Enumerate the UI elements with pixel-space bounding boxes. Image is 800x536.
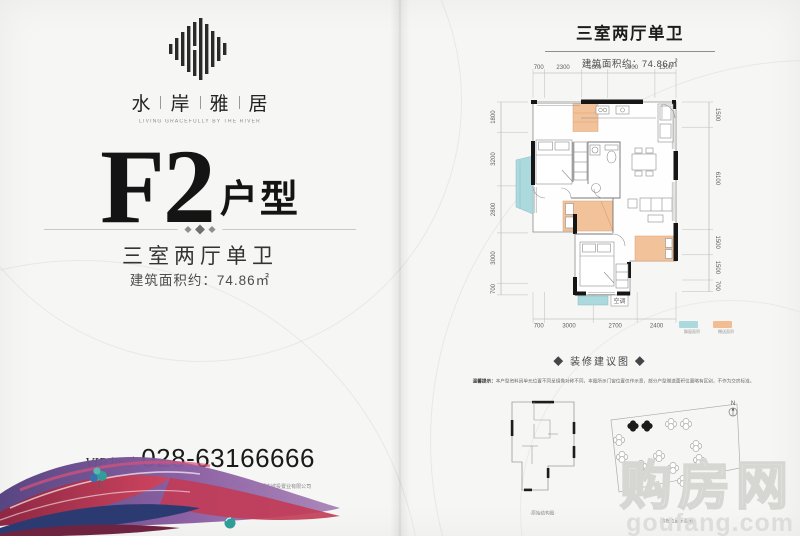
buildings-gray bbox=[613, 418, 704, 486]
bed-orange-right bbox=[635, 236, 674, 261]
legend-label-bay: 飘窗面积 bbox=[684, 328, 700, 334]
fold-crease bbox=[390, 0, 410, 536]
dim-label: 700 bbox=[534, 65, 545, 71]
right-page: 三室两厅单卫 建筑面积约：74.86㎡ 700 2300 1600 2900 bbox=[400, 0, 800, 536]
dim-label: 1500 bbox=[714, 261, 720, 275]
title-divider bbox=[44, 229, 356, 230]
floor-plan: 700 2300 1600 2900 1300 700 3000 2700 24… bbox=[470, 56, 740, 346]
dim-label: 3200 bbox=[491, 152, 497, 166]
dim-label: 1500 bbox=[714, 108, 720, 122]
dim-label: 2700 bbox=[609, 324, 623, 330]
north-label: N bbox=[731, 401, 735, 407]
logo-separator bbox=[160, 96, 161, 109]
structure-caption: ·原始结构图· bbox=[482, 504, 604, 522]
divider-ornament-icon bbox=[178, 224, 223, 235]
dim-label: 2400 bbox=[650, 324, 664, 330]
logo-char: 居 bbox=[249, 89, 269, 116]
legend-item-gift: 赠送面积 bbox=[713, 321, 739, 338]
disclaimer-text: 本户型资料因单元位置不同呈镜像对称不同，本图所示门窗位置仅作示意，部分户型赠送面… bbox=[496, 379, 755, 384]
bay-window bbox=[578, 296, 608, 305]
logo-separator bbox=[200, 96, 201, 109]
bed-master bbox=[536, 140, 572, 184]
structure-figure: ·原始结构图· bbox=[482, 394, 604, 522]
left-page: 水 岸 雅 居 LIVING GRACEFULLY BY THE RIVER F… bbox=[0, 0, 400, 536]
north-indicator: N bbox=[729, 401, 737, 416]
dim-label: 1500 bbox=[714, 236, 720, 250]
dim-label: 1600 bbox=[588, 65, 602, 71]
entry-cabinet bbox=[573, 104, 598, 132]
legend-swatch-bay bbox=[679, 321, 698, 328]
disclaimer-prefix: 温馨提示： bbox=[473, 379, 496, 384]
dim-label: 700 bbox=[491, 283, 497, 294]
dim-label: 2300 bbox=[556, 65, 570, 71]
plan-title: 三室两厅单卫 bbox=[545, 20, 715, 52]
logo-char: 水 bbox=[131, 89, 151, 116]
unit-suffix: 户型 bbox=[220, 168, 300, 223]
suggestion-title: ◆ 装修建议图 ◆ bbox=[400, 353, 800, 368]
dim-label: 1300 bbox=[659, 65, 673, 71]
structure-plan bbox=[484, 394, 602, 498]
dim-label: 700 bbox=[714, 281, 720, 292]
wave-paths bbox=[0, 457, 340, 536]
dim-label: 3000 bbox=[491, 251, 497, 265]
dim-label: 700 bbox=[534, 324, 545, 330]
logo-char: 雅 bbox=[210, 89, 230, 116]
bed-orange-middle bbox=[563, 201, 613, 231]
ac-label: 空调 bbox=[613, 297, 625, 305]
wave-artwork bbox=[0, 416, 380, 536]
siteplan-figure: N ·楼栋位置示意图· bbox=[606, 394, 748, 530]
logo-tagline: LIVING GRACEFULLY BY THE RIVER bbox=[56, 119, 344, 124]
legend-swatch-gift bbox=[713, 321, 732, 328]
legend-label-gift: 赠送面积 bbox=[718, 328, 734, 334]
dim-label: 6100 bbox=[714, 172, 720, 186]
siteplan-caption: ·楼栋位置示意图· bbox=[606, 512, 748, 530]
dim-label: 2800 bbox=[491, 202, 497, 216]
unit-title: F2户型 bbox=[0, 142, 400, 233]
balcony-bay bbox=[516, 156, 533, 214]
buildings-highlighted bbox=[627, 420, 652, 431]
dim-label: 1800 bbox=[491, 110, 497, 124]
plan-legend: 飘窗面积 赠送面积 bbox=[679, 321, 739, 338]
dim-label: 2900 bbox=[625, 65, 639, 71]
logo-char: 岸 bbox=[170, 89, 190, 116]
logo-name: 水 岸 雅 居 bbox=[0, 89, 400, 116]
brand-logo: 水 岸 雅 居 LIVING GRACEFULLY BY THE RIVER bbox=[0, 18, 400, 126]
disclaimer: 温馨提示：本户型资料因单元位置不同呈镜像对称不同，本图所示门窗位置仅作示意，部分… bbox=[400, 372, 800, 390]
dim-label: 3000 bbox=[562, 324, 576, 330]
ac-slot: 空调 bbox=[611, 295, 628, 306]
logo-separator bbox=[239, 96, 240, 109]
wardrobe bbox=[574, 142, 587, 180]
site-plan: N bbox=[607, 394, 747, 506]
area-text: 建筑面积约：74.86㎡ bbox=[0, 269, 400, 289]
legend-item-bay: 飘窗面积 bbox=[679, 321, 705, 338]
teal-dot bbox=[225, 518, 236, 529]
logo-building-icon bbox=[161, 18, 239, 80]
brochure-spread: 水 岸 雅 居 LIVING GRACEFULLY BY THE RIVER F… bbox=[0, 0, 800, 536]
layout-text: 三室两厅单卫 bbox=[0, 240, 400, 270]
